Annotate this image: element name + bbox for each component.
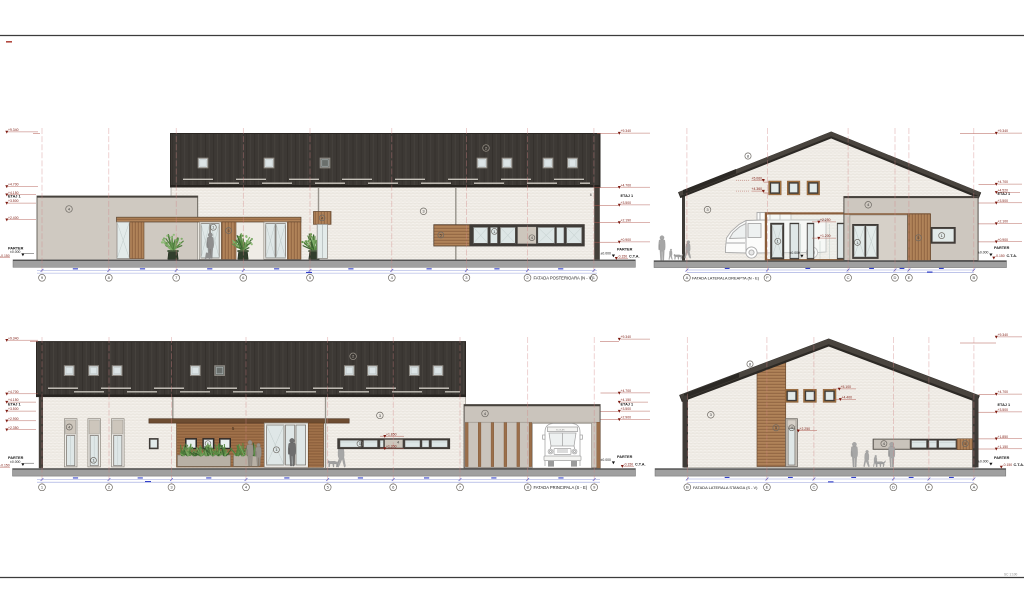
svg-text:E: E <box>908 275 911 280</box>
svg-text:+9.340: +9.340 <box>8 128 19 132</box>
svg-text:+3.500: +3.500 <box>8 199 19 203</box>
svg-text:+4.700: +4.700 <box>998 390 1009 394</box>
svg-text:C.T.A.: C.T.A. <box>1014 463 1024 467</box>
svg-text:+2.190: +2.190 <box>621 219 632 223</box>
svg-text:+4.360: +4.360 <box>752 187 763 191</box>
svg-text:+2.350: +2.350 <box>8 426 19 430</box>
svg-text:+9.340: +9.340 <box>998 333 1009 337</box>
svg-text:FATADA LATERALA STANGA (S - V): FATADA LATERALA STANGA (S - V) <box>693 485 758 490</box>
svg-text:+2.400: +2.400 <box>8 216 19 220</box>
svg-text:+5.100: +5.100 <box>841 385 852 389</box>
svg-text:-0.150: -0.150 <box>624 462 634 466</box>
svg-text:+1.850: +1.850 <box>998 435 1009 439</box>
svg-text:+1.350: +1.350 <box>386 445 397 449</box>
svg-text:+4.700: +4.700 <box>8 183 19 187</box>
svg-text:+1.850: +1.850 <box>386 432 397 436</box>
svg-text:±0.000: ±0.000 <box>10 460 20 464</box>
svg-text:+4.700: +4.700 <box>8 390 19 394</box>
svg-text:+5.060: +5.060 <box>752 176 763 180</box>
svg-text:ETAJ 1: ETAJ 1 <box>998 192 1011 196</box>
svg-text:+2.250: +2.250 <box>800 427 811 431</box>
svg-text:-0.150: -0.150 <box>0 254 10 258</box>
svg-text:+3.500: +3.500 <box>998 408 1009 412</box>
svg-text:+0.900: +0.900 <box>621 238 632 242</box>
svg-text:-0.150: -0.150 <box>0 463 10 467</box>
svg-text:+3.500: +3.500 <box>621 407 632 411</box>
svg-text:+4.700: +4.700 <box>998 180 1009 184</box>
svg-text:C: C <box>812 485 815 490</box>
svg-text:PARTER: PARTER <box>617 455 633 459</box>
svg-text:-0.150: -0.150 <box>618 254 628 258</box>
svg-text:SCOLAR: SCOLAR <box>556 429 565 432</box>
svg-text:E: E <box>766 485 769 490</box>
svg-text:+4.700: +4.700 <box>621 389 632 393</box>
svg-text:±0.000: ±0.000 <box>601 251 611 255</box>
svg-text:+2.900: +2.900 <box>621 416 632 420</box>
svg-text:FATADA POSTERIOARA (N - V): FATADA POSTERIOARA (N - V) <box>534 276 594 281</box>
svg-text:PARTER: PARTER <box>994 246 1010 250</box>
svg-text:-0.150: -0.150 <box>1003 463 1013 467</box>
svg-text:+9.340: +9.340 <box>998 129 1009 133</box>
svg-text:C.T.A.: C.T.A. <box>1007 254 1018 258</box>
svg-text:D: D <box>894 275 897 280</box>
svg-text:A: A <box>973 485 976 490</box>
svg-text:+9.340: +9.340 <box>621 335 632 339</box>
svg-text:+3.500: +3.500 <box>621 201 632 205</box>
svg-text:±0.000: ±0.000 <box>978 250 988 254</box>
svg-text:+4.400: +4.400 <box>842 395 853 399</box>
svg-text:+2.100: +2.100 <box>998 220 1009 224</box>
svg-text:ETAJ 1: ETAJ 1 <box>621 194 634 198</box>
svg-text:+0.900: +0.900 <box>998 238 1009 242</box>
svg-text:ETAJ 1: ETAJ 1 <box>998 403 1011 407</box>
svg-text:ETAJ 1: ETAJ 1 <box>621 403 634 407</box>
svg-text:6: 6 <box>590 193 592 197</box>
svg-text:SC 1:100: SC 1:100 <box>1004 572 1018 576</box>
svg-text:±0.000: ±0.000 <box>790 251 800 255</box>
svg-text:±0.000: ±0.000 <box>601 458 611 462</box>
svg-text:-0.150: -0.150 <box>995 254 1005 258</box>
svg-text:+4.150: +4.150 <box>8 398 19 402</box>
svg-text:C.T.A.: C.T.A. <box>635 462 646 466</box>
svg-text:+2.250: +2.250 <box>820 218 831 222</box>
svg-text:+1.150: +1.150 <box>998 445 1009 449</box>
svg-text:+3.500: +3.500 <box>998 199 1009 203</box>
svg-text:PARTER: PARTER <box>617 248 633 252</box>
svg-text:ETAJ 1: ETAJ 1 <box>8 194 21 198</box>
svg-text:FATADA LATERALA DREAPTA (N - E: FATADA LATERALA DREAPTA (N - E) <box>692 276 760 281</box>
svg-text:±0.000: ±0.000 <box>978 460 988 464</box>
svg-text:B: B <box>972 275 975 280</box>
svg-text:PARTER: PARTER <box>994 456 1010 460</box>
svg-text:FATADA PRINCIPALA (S - E): FATADA PRINCIPALA (S - E) <box>534 485 588 490</box>
svg-text:+3.500: +3.500 <box>8 407 19 411</box>
svg-text:±0.000: ±0.000 <box>10 250 20 254</box>
svg-text:C: C <box>847 275 850 280</box>
svg-text:+2.900: +2.900 <box>8 417 19 421</box>
svg-text:B: B <box>686 485 689 490</box>
svg-text:+4.150: +4.150 <box>621 398 632 402</box>
svg-text:+1.200: +1.200 <box>820 234 831 238</box>
svg-text:ETAJ 1: ETAJ 1 <box>8 403 21 407</box>
svg-text:+9.340: +9.340 <box>621 129 632 133</box>
svg-text:D: D <box>892 485 895 490</box>
svg-text:A: A <box>686 275 689 280</box>
svg-text:C.T.A.: C.T.A. <box>629 254 640 258</box>
svg-text:+9.340: +9.340 <box>8 336 19 340</box>
svg-text:+4.700: +4.700 <box>621 183 632 187</box>
